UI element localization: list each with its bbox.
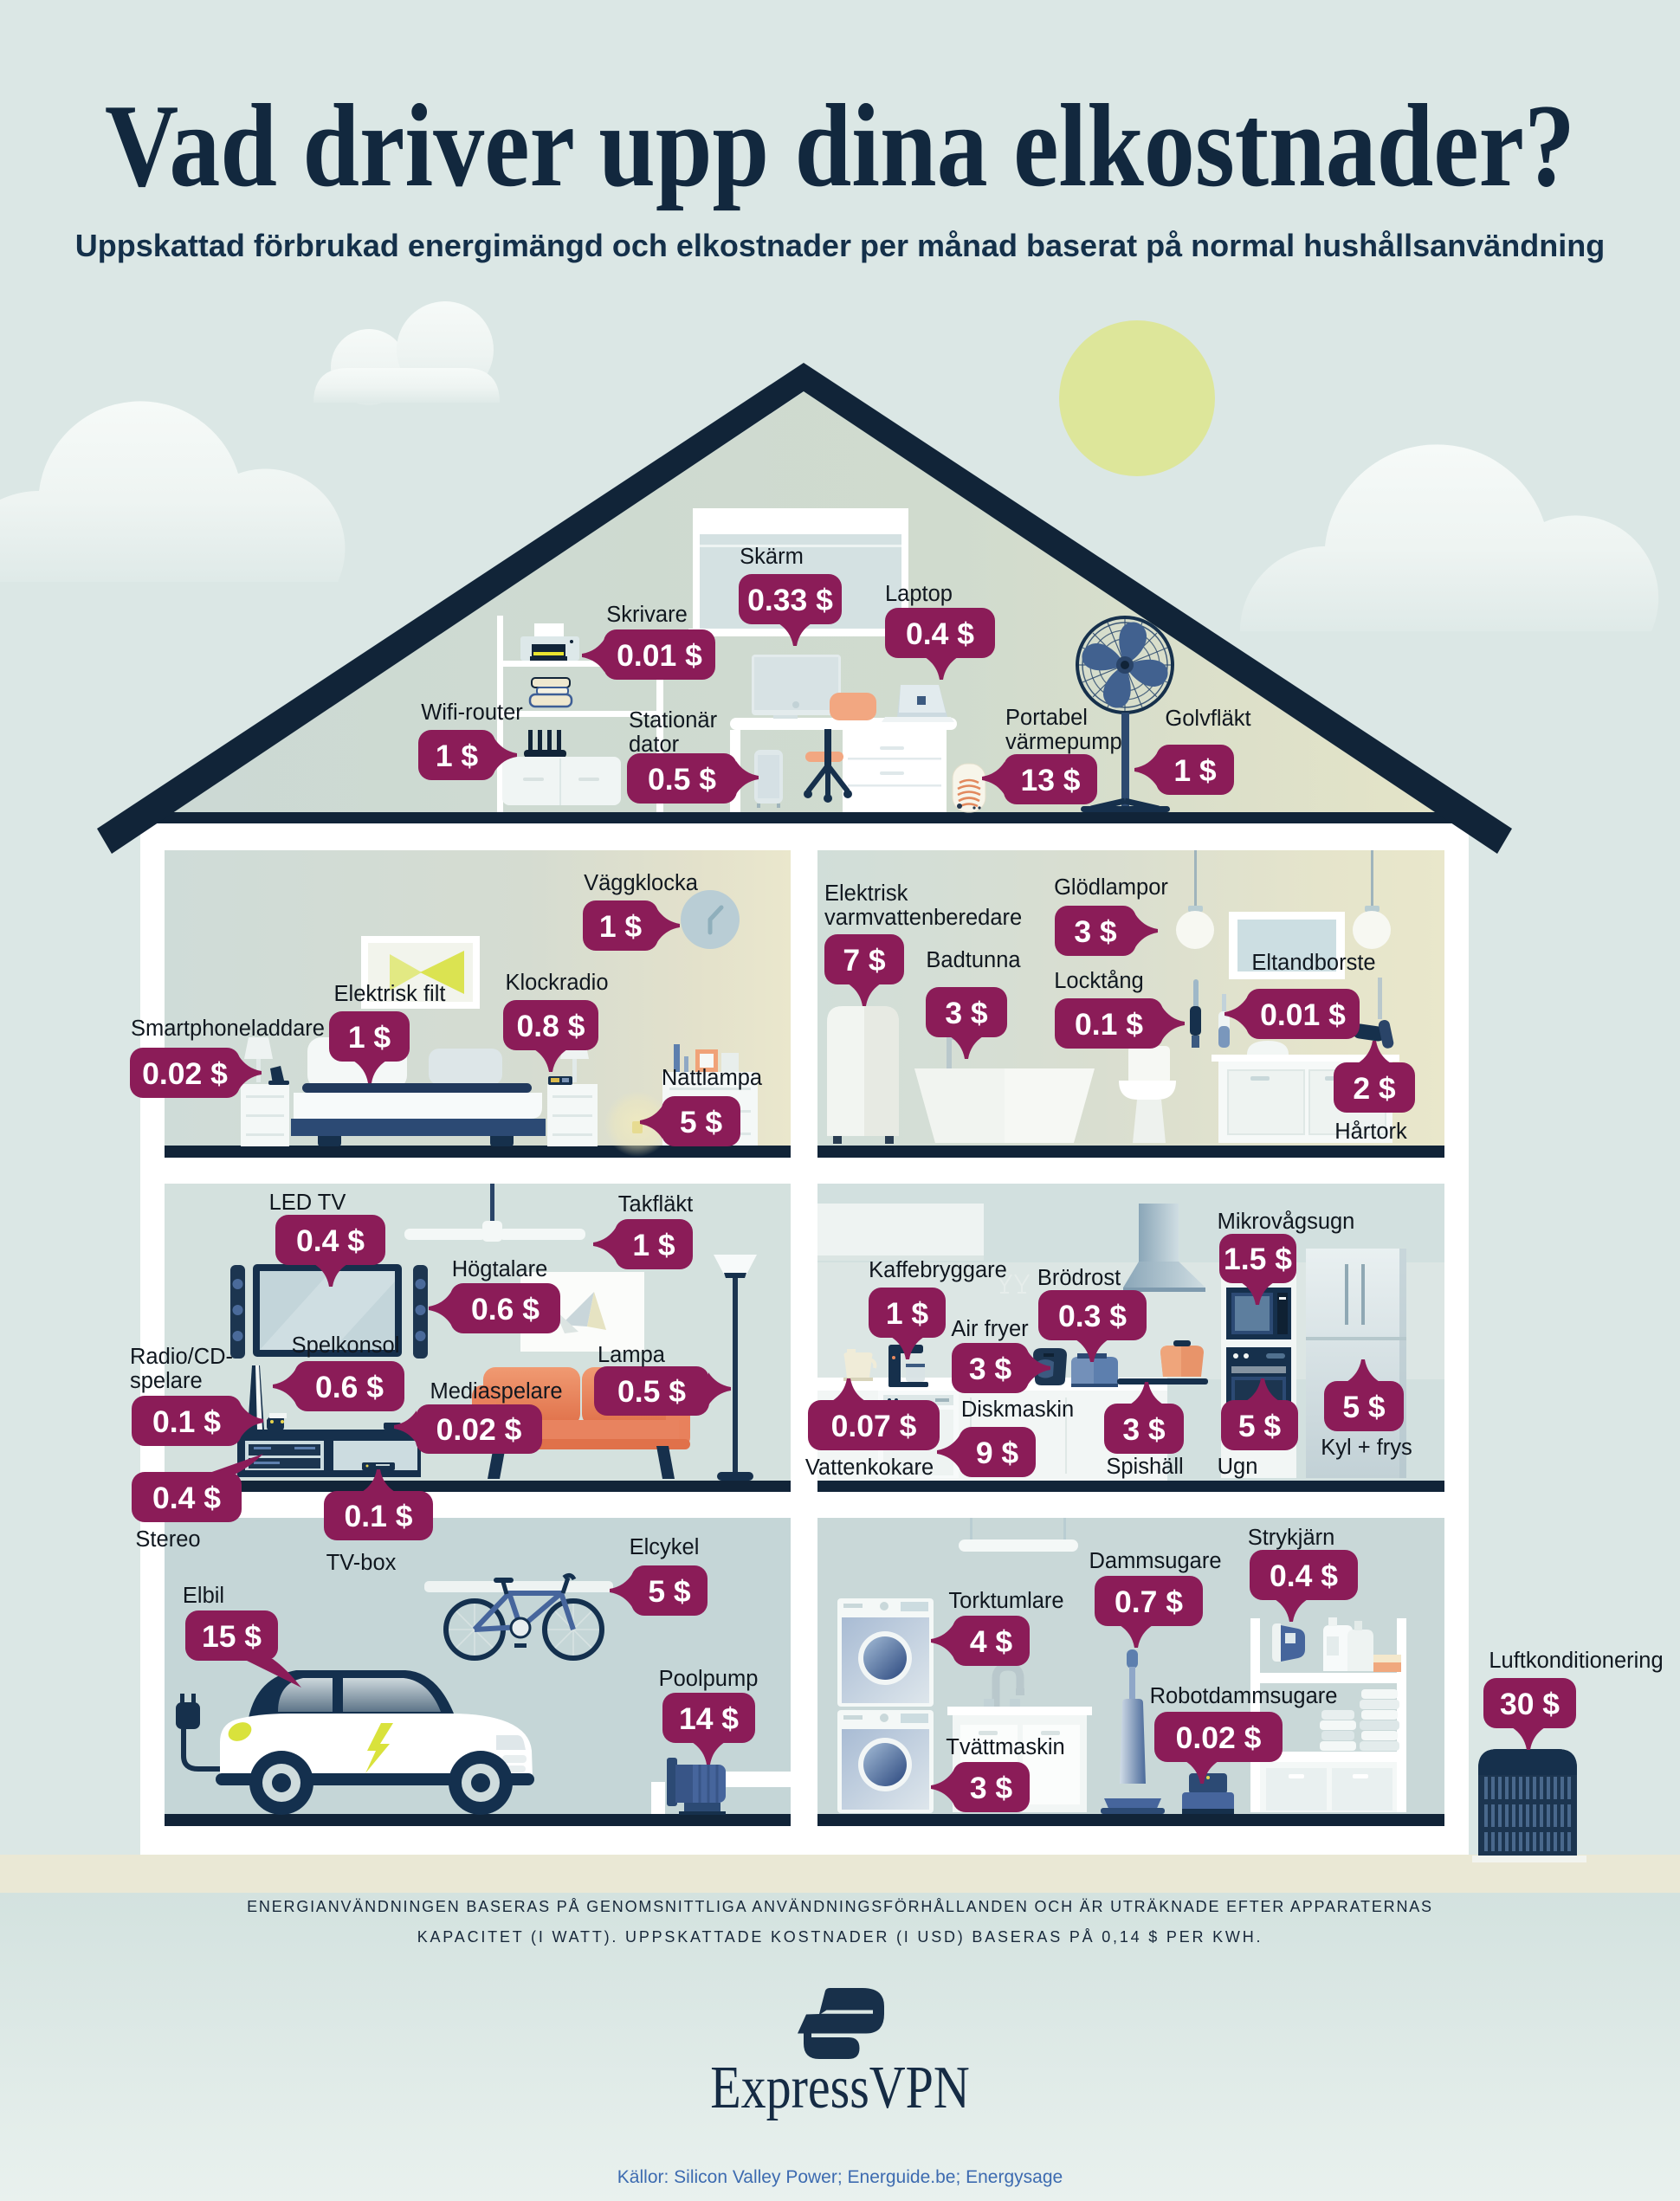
svg-text:5 $: 5 $	[1238, 1409, 1282, 1443]
svg-text:3 $: 3 $	[1074, 914, 1117, 949]
svg-text:0.1 $: 0.1 $	[152, 1404, 221, 1439]
svg-text:0.01 $: 0.01 $	[1260, 997, 1346, 1032]
svg-text:ExpressVPN: ExpressVPN	[710, 2054, 970, 2120]
svg-text:Spishäll: Spishäll	[1106, 1455, 1183, 1479]
svg-text:Luftkonditionering: Luftkonditionering	[1489, 1649, 1663, 1673]
svg-text:1 $: 1 $	[886, 1296, 929, 1331]
svg-text:Ugn: Ugn	[1218, 1455, 1258, 1479]
svg-text:Golvfläkt: Golvfläkt	[1165, 707, 1250, 731]
svg-text:0.4 $: 0.4 $	[1270, 1559, 1338, 1593]
svg-text:Nattlampa: Nattlampa	[662, 1066, 763, 1090]
svg-text:0.4 $: 0.4 $	[152, 1481, 221, 1515]
svg-text:3 $: 3 $	[969, 1352, 1012, 1386]
svg-text:3 $: 3 $	[970, 1771, 1013, 1805]
svg-text:Mediaspelare: Mediaspelare	[430, 1379, 562, 1404]
svg-text:Torktumlare: Torktumlare	[948, 1589, 1063, 1613]
svg-text:Klockradio: Klockradio	[505, 971, 608, 995]
svg-text:Lampa: Lampa	[598, 1343, 666, 1367]
svg-text:Takfläkt: Takfläkt	[618, 1192, 693, 1217]
svg-text:30 $: 30 $	[1500, 1687, 1560, 1721]
svg-text:värmepump: värmepump	[1005, 730, 1122, 754]
svg-text:0.6 $: 0.6 $	[315, 1370, 384, 1404]
svg-text:Locktång: Locktång	[1054, 969, 1144, 993]
svg-text:4 $: 4 $	[970, 1624, 1013, 1659]
svg-text:3 $: 3 $	[1122, 1412, 1166, 1447]
svg-text:ENERGIANVÄNDNINGEN BASERAS PÅ: ENERGIANVÄNDNINGEN BASERAS PÅ GENOMSNITT…	[247, 1898, 1433, 1915]
svg-text:3 $: 3 $	[945, 996, 988, 1030]
svg-text:13 $: 13 $	[1020, 763, 1080, 797]
svg-text:Badtunna: Badtunna	[926, 948, 1021, 972]
svg-text:Strykjärn: Strykjärn	[1248, 1526, 1335, 1550]
svg-text:LED TV: LED TV	[269, 1191, 346, 1215]
svg-text:0.02 $: 0.02 $	[436, 1412, 522, 1447]
svg-text:0.07 $: 0.07 $	[831, 1409, 917, 1443]
svg-text:Portabel: Portabel	[1005, 706, 1088, 730]
svg-text:0.02 $: 0.02 $	[1176, 1720, 1262, 1755]
svg-text:Uppskattad förbrukad energimän: Uppskattad förbrukad energimängd och elk…	[75, 228, 1605, 263]
svg-text:0.7 $: 0.7 $	[1115, 1585, 1183, 1619]
svg-text:15 $: 15 $	[202, 1619, 262, 1654]
svg-text:Stationär: Stationär	[629, 708, 718, 733]
svg-text:Eltandborste: Eltandborste	[1251, 951, 1375, 975]
svg-text:5 $: 5 $	[1342, 1390, 1386, 1424]
svg-text:Stereo: Stereo	[135, 1527, 200, 1552]
svg-text:Poolpump: Poolpump	[659, 1667, 759, 1691]
svg-text:0.6 $: 0.6 $	[471, 1292, 540, 1326]
svg-text:Diskmaskin: Diskmaskin	[961, 1397, 1074, 1422]
svg-text:1 $: 1 $	[1173, 753, 1217, 788]
svg-text:0.01 $: 0.01 $	[617, 638, 702, 673]
svg-text:dator: dator	[629, 733, 680, 757]
svg-text:TV-box: TV-box	[326, 1551, 397, 1575]
svg-text:Hårtork: Hårtork	[1334, 1120, 1407, 1144]
svg-text:Smartphoneladdare: Smartphoneladdare	[131, 1017, 325, 1041]
svg-text:0.4 $: 0.4 $	[906, 616, 974, 651]
svg-text:Väggklocka: Väggklocka	[584, 871, 699, 895]
svg-text:Tvättmaskin: Tvättmaskin	[946, 1735, 1064, 1759]
svg-text:Elektrisk: Elektrisk	[824, 881, 908, 906]
svg-text:Laptop: Laptop	[885, 582, 953, 606]
svg-text:Elcykel: Elcykel	[630, 1535, 700, 1559]
svg-text:7 $: 7 $	[843, 943, 886, 978]
svg-text:varmvattenberedare: varmvattenberedare	[824, 906, 1022, 930]
svg-text:Skärm: Skärm	[740, 545, 804, 569]
svg-text:spelare: spelare	[130, 1369, 203, 1393]
svg-text:0.3 $: 0.3 $	[1058, 1299, 1127, 1333]
svg-text:Wifi-router: Wifi-router	[421, 700, 523, 725]
svg-text:1 $: 1 $	[632, 1228, 675, 1262]
svg-text:5 $: 5 $	[680, 1105, 723, 1139]
svg-text:0.5 $: 0.5 $	[648, 762, 716, 797]
svg-text:0.5 $: 0.5 $	[617, 1374, 686, 1409]
svg-text:1 $: 1 $	[348, 1020, 391, 1055]
svg-text:Elektrisk filt: Elektrisk filt	[334, 982, 446, 1006]
svg-text:14 $: 14 $	[679, 1701, 739, 1736]
svg-text:Glödlampor: Glödlampor	[1054, 875, 1168, 900]
svg-text:Högtalare: Högtalare	[452, 1257, 548, 1281]
svg-text:0.8 $: 0.8 $	[517, 1009, 585, 1043]
svg-text:KAPACITET (I WATT). UPPSKATTAD: KAPACITET (I WATT). UPPSKATTADE KOSTNADE…	[417, 1928, 1263, 1946]
svg-text:Mikrovågsugn: Mikrovågsugn	[1218, 1210, 1355, 1234]
svg-text:Radio/CD-: Radio/CD-	[130, 1345, 233, 1369]
svg-text:0.1 $: 0.1 $	[345, 1499, 413, 1533]
svg-text:0.02 $: 0.02 $	[142, 1056, 228, 1091]
svg-text:Robotdammsugare: Robotdammsugare	[1150, 1684, 1338, 1708]
svg-text:Kyl + frys: Kyl + frys	[1321, 1436, 1412, 1460]
svg-text:1 $: 1 $	[436, 739, 479, 773]
svg-text:0.1 $: 0.1 $	[1075, 1007, 1143, 1042]
svg-text:0.33 $: 0.33 $	[747, 583, 833, 617]
svg-text:Air fryer: Air fryer	[951, 1317, 1029, 1341]
svg-text:Spelkonsol: Spelkonsol	[292, 1333, 400, 1358]
svg-text:Kaffebryggare: Kaffebryggare	[869, 1258, 1007, 1282]
svg-text:0.4 $: 0.4 $	[296, 1223, 365, 1258]
svg-text:5 $: 5 $	[648, 1574, 691, 1609]
svg-text:Elbil: Elbil	[183, 1584, 224, 1608]
svg-text:Vattenkokare: Vattenkokare	[805, 1455, 934, 1480]
svg-text:9 $: 9 $	[976, 1436, 1019, 1470]
svg-text:1 $: 1 $	[599, 909, 643, 944]
svg-text:1.5 $: 1.5 $	[1224, 1242, 1292, 1276]
svg-text:2 $: 2 $	[1353, 1071, 1396, 1106]
svg-text:Vad driver upp dina elkostnade: Vad driver upp dina elkostnader?	[105, 80, 1575, 211]
svg-text:Brödrost: Brödrost	[1037, 1266, 1121, 1290]
svg-text:Dammsugare: Dammsugare	[1089, 1549, 1221, 1573]
svg-text:Källor: Silicon Valley Power;: Källor: Silicon Valley Power; Energuide.…	[617, 2167, 1063, 2187]
svg-text:Skrivare: Skrivare	[606, 603, 688, 627]
